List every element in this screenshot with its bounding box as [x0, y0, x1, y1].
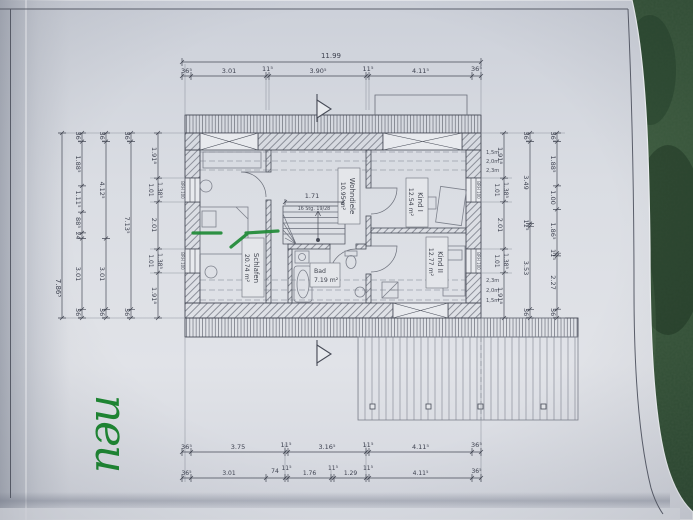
height-mark: 2,3m — [486, 278, 499, 284]
room-label-wohndiele: Wohndiele — [348, 178, 356, 215]
dim-label: 1.01 — [147, 183, 154, 197]
room-label-bad: Bad — [314, 268, 326, 275]
handwritten-note-neu: neu — [85, 395, 136, 472]
dim-label: 1.91⁸ — [496, 287, 504, 304]
dim-label: 1.29 — [344, 470, 358, 477]
dim-label: 36⁵ — [181, 67, 192, 75]
dim-label: 36⁵ — [123, 132, 131, 143]
dim-label: 36⁵ — [471, 468, 482, 475]
dim-label: 3.49 — [522, 175, 530, 189]
dim-label: 1.38⁵ — [156, 182, 163, 198]
dim-label: 1.86⁵ — [549, 222, 557, 239]
photo-of-floorplan: Schlafen 20.74 m² Wohndiele 10.95 m² Kin… — [0, 0, 693, 520]
room-area-kind1: 12.54 m² — [407, 188, 414, 217]
dim-label: 3.01 — [98, 267, 106, 281]
brh-label: BRH 100 — [180, 181, 185, 199]
dim-label: 1.38⁵ — [156, 253, 163, 269]
height-mark: 2,3m — [486, 168, 499, 174]
dim-label: 1.01 — [493, 183, 500, 197]
dim-label: 1.00 — [549, 190, 557, 204]
room-label-schlafen: Schlafen — [252, 253, 260, 283]
room-area-bad: 7.19 m² — [314, 277, 339, 284]
dim-label: 4.11⁵ — [412, 443, 429, 451]
dim-label: 3.90⁵ — [309, 67, 326, 75]
dim-label: 2.01 — [150, 218, 158, 232]
dim-label: 36⁵ — [549, 132, 557, 143]
dim-label: 1.76 — [303, 470, 317, 477]
dim-label: 24 — [74, 232, 81, 240]
dim-label: 11⁵ — [363, 441, 374, 449]
room-label-kind2: Kind II — [436, 251, 444, 273]
dim-label: 1.38⁵ — [502, 253, 509, 269]
dim-label: 1.38⁵ — [502, 182, 509, 198]
dim-label: 36⁵ — [471, 65, 482, 73]
dim-label: 36⁵ — [522, 308, 530, 319]
dim-label: 2.27 — [549, 275, 557, 289]
room-area-kind2: 12.77 m² — [427, 248, 434, 277]
dim-label: 11⁵ — [363, 465, 374, 472]
dim-label: 36⁵ — [98, 132, 106, 143]
dim-label: 36⁵ — [74, 308, 82, 319]
paper-bottom-fold — [0, 492, 670, 508]
dim-label: 88⁵ — [74, 217, 82, 228]
dim-label: 1.71 — [305, 192, 319, 200]
dim-label: 36⁵ — [123, 308, 131, 319]
dim-label: 1.01 — [147, 254, 154, 268]
stairs-label: 16 Stg. 19/28 — [298, 206, 330, 212]
dim-label: 1.91⁸ — [150, 287, 158, 304]
dim-label: 74 — [271, 468, 279, 475]
dim-label: 3.01 — [222, 470, 236, 477]
dim-label: 3.16⁵ — [318, 443, 335, 451]
dim-label: 4.12⁵ — [98, 181, 106, 198]
floorplan-sheet: Schlafen 20.74 m² Wohndiele 10.95 m² Kin… — [0, 0, 693, 520]
dim-label: 11⁵ — [281, 441, 292, 449]
dim-label: 2.01 — [496, 218, 504, 232]
brh-label: BRH 100 — [180, 252, 185, 270]
dim-label: 36⁵ — [98, 308, 106, 319]
dim-label: 11⁵ — [262, 65, 273, 73]
dim-label: 1.91⁸ — [496, 147, 504, 164]
room-area-wohndiele: 10.95 m² — [339, 182, 346, 211]
room-area-schlafen: 20.74 m² — [243, 254, 250, 283]
paper-bottom-edge — [0, 508, 680, 520]
dim-label: 3.01 — [74, 267, 82, 281]
dim-label: 1.88⁵ — [74, 155, 82, 172]
dim-label: 36⁵ — [181, 443, 192, 451]
dim-label: 1.88⁵ — [549, 155, 557, 172]
dim-label: 11⁵ — [328, 465, 339, 472]
dim-label: 36⁵ — [522, 132, 530, 143]
dim-label: 36⁵ — [471, 441, 482, 449]
dim-label: 11.99 — [321, 52, 341, 60]
room-label-kind1: Kind I — [416, 192, 424, 212]
dim-label: 11⁵ — [522, 220, 530, 231]
dim-label: 7.13⁵ — [123, 216, 131, 233]
dim-label: 7.86⁵ — [54, 279, 62, 298]
terrace-deck — [358, 337, 578, 420]
dim-label: 1.91⁸ — [150, 147, 158, 164]
dim-label: 3.01 — [222, 67, 236, 75]
dim-label: 36⁵ — [181, 470, 192, 477]
dim-label: 36⁵ — [549, 308, 557, 319]
dim-label: 11⁵ — [363, 65, 374, 73]
dim-label: 11⁵ — [281, 465, 292, 472]
dim-label: 3.53 — [522, 261, 530, 275]
brh-label: BRH 100 — [476, 252, 481, 270]
dim-label: 1.01 — [493, 254, 500, 268]
dim-label: 3.75 — [231, 443, 245, 451]
dim-label: 36⁵ — [74, 132, 82, 143]
dim-label: 4.11⁵ — [412, 67, 429, 75]
brh-label: BRH 100 — [476, 181, 481, 199]
dim-label: 11⁵ — [549, 249, 557, 260]
dim-label: 1.11⁵ — [74, 190, 82, 207]
dim-label: 4.11⁵ — [413, 470, 429, 477]
